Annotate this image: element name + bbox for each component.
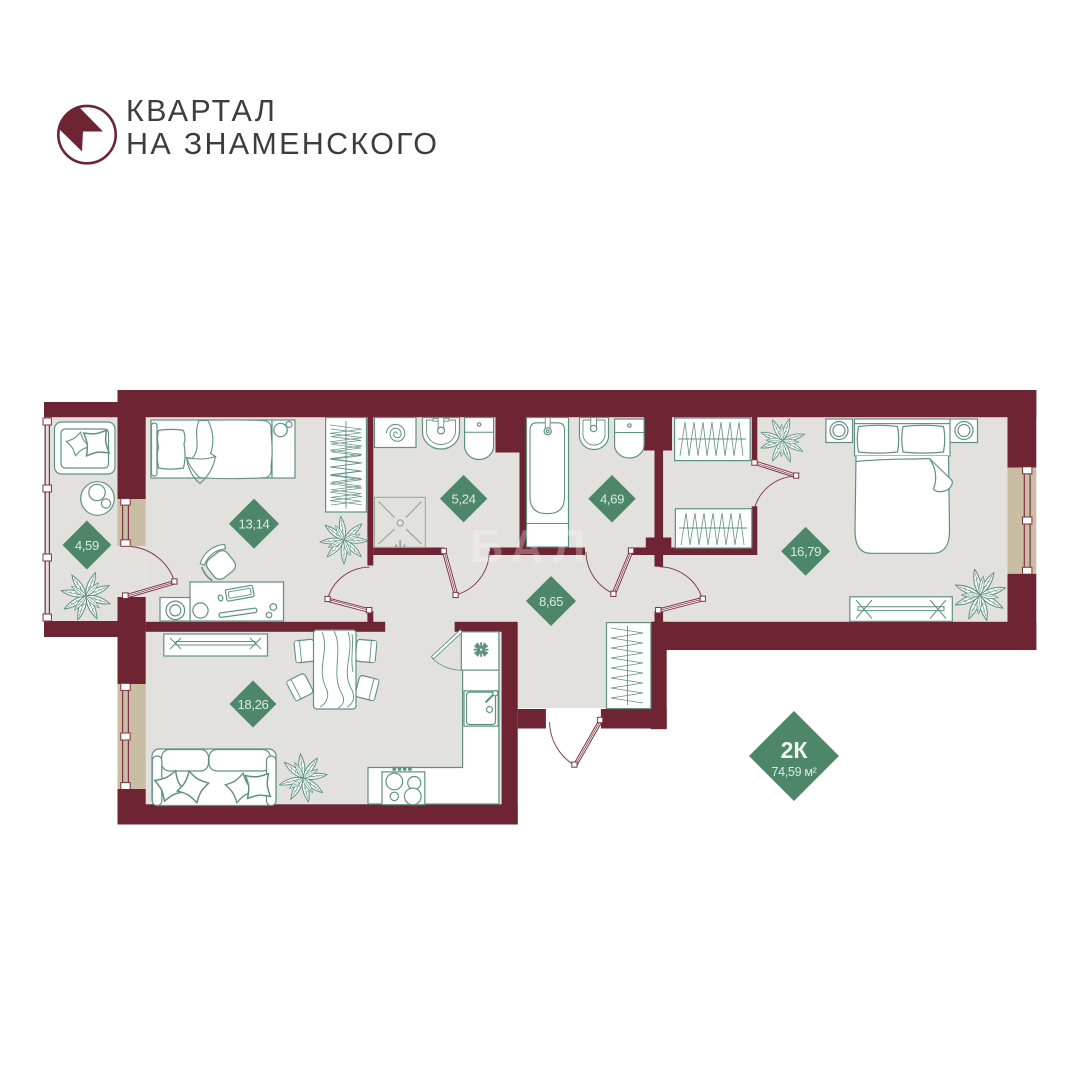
svg-text:2К: 2К <box>781 737 809 763</box>
svg-text:16,79: 16,79 <box>790 544 821 559</box>
svg-text:18,26: 18,26 <box>237 697 268 712</box>
svg-text:5,24: 5,24 <box>452 491 476 506</box>
svg-text:74,59 м²: 74,59 м² <box>771 765 816 779</box>
svg-text:4,69: 4,69 <box>600 492 624 507</box>
svg-text:13,14: 13,14 <box>238 517 269 532</box>
svg-text:БАЛ: БАЛ <box>470 520 594 572</box>
svg-text:4,59: 4,59 <box>75 538 99 553</box>
svg-text:8,65: 8,65 <box>539 594 563 609</box>
